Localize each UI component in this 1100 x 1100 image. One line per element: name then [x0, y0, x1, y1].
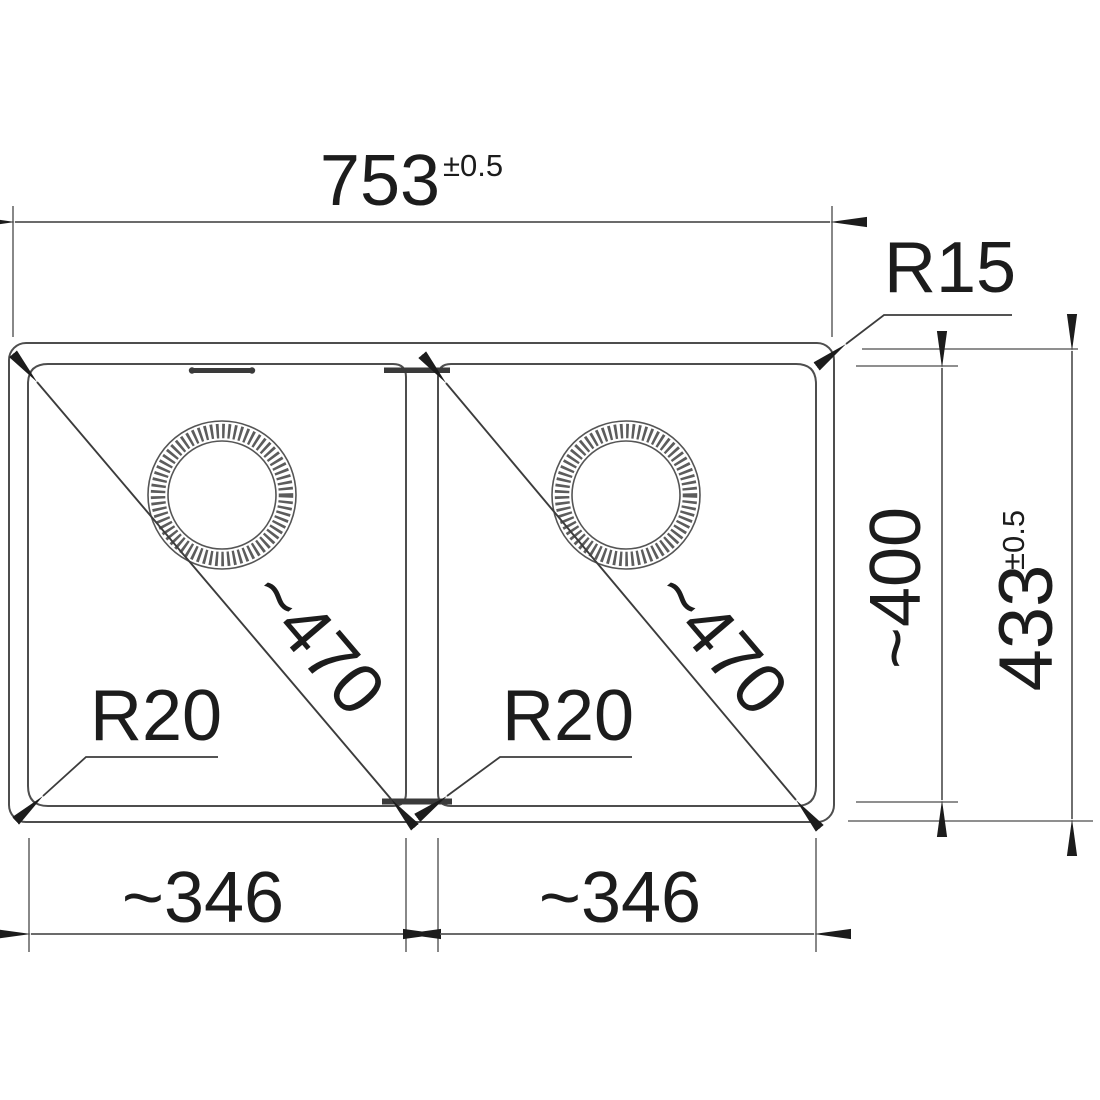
right-drain-ring [552, 421, 700, 569]
label-outer-radius: R15 [884, 228, 1016, 308]
r15-callout: R15 [846, 228, 1016, 344]
dim-overall-width-tolerance: ±0.5 [443, 148, 503, 183]
left-drain-ring [148, 421, 296, 569]
bowl-width-dimensions: ~346 ~346 [29, 838, 816, 952]
left-bowl-top-tab [189, 367, 255, 373]
label-inner-radius-left: R20 [90, 676, 222, 756]
dim-bowl-diagonal-right: ~470 [637, 555, 803, 730]
overall-width-dimension: 753 ±0.5 [13, 141, 832, 337]
r15-leader [846, 315, 1012, 344]
sink-technical-drawing: ~470 ~470 R20 R20 R15 753 ±0.5 ~400 [0, 0, 1100, 1100]
dim-bowl-width-right: ~346 [539, 858, 701, 938]
divider-bottom-bar [382, 799, 452, 805]
r20-right-leader [447, 757, 632, 796]
drawing-canvas: ~470 ~470 R20 R20 R15 753 ±0.5 ~400 [0, 0, 1100, 1100]
dim-bowl-width-left: ~346 [122, 858, 284, 938]
depth-dimensions: ~400 433 ±0.5 [848, 349, 1093, 821]
dim-bowl-depth: ~400 [856, 507, 936, 669]
dim-overall-width-value: 753 [320, 141, 440, 221]
r20-left-leader [43, 757, 218, 796]
dim-overall-depth-value: 433 [984, 565, 1069, 692]
label-inner-radius-right: R20 [502, 676, 634, 756]
dim-overall-depth-tolerance: ±0.5 [996, 510, 1031, 570]
divider-top-bar [384, 368, 450, 374]
